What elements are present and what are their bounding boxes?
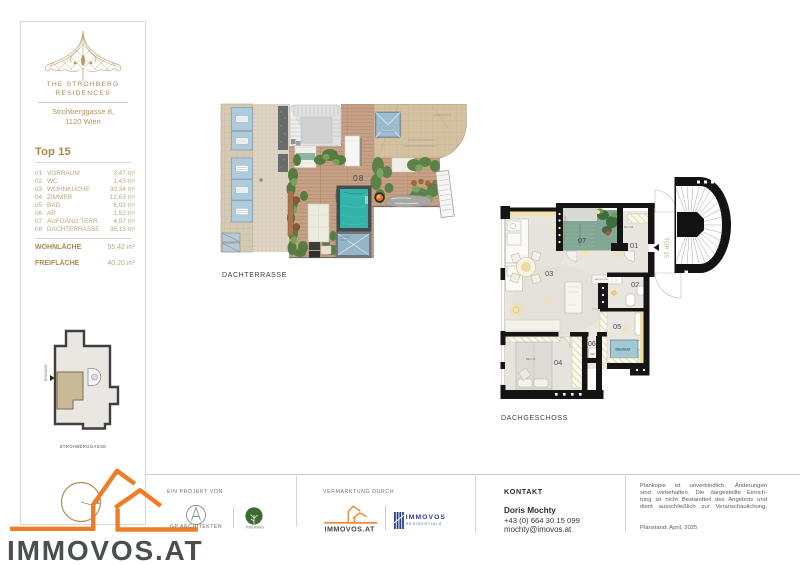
svg-text:06: 06 <box>588 341 596 348</box>
svg-text:WM: WM <box>590 352 596 356</box>
svg-text:IMMOVOS.AT: IMMOVOS.AT <box>325 525 375 534</box>
svg-text:PREMWERK: PREMWERK <box>246 526 264 530</box>
svg-text:Oberlicht: Oberlicht <box>616 348 632 352</box>
svg-text:Aufgang zur Terrasse: Aufgang zur Terrasse <box>563 215 567 240</box>
svg-text:RESIDENTIALS: RESIDENTIALS <box>406 522 442 526</box>
svg-text:BH 2,10: BH 2,10 <box>526 357 536 361</box>
svg-text:01: 01 <box>630 241 638 250</box>
svg-text:GARDEROBE: GARDEROBE <box>594 278 609 281</box>
svg-text:IMMOVOS: IMMOVOS <box>406 514 446 521</box>
svg-text:07: 07 <box>578 236 586 245</box>
svg-text:EINGANG: EINGANG <box>44 364 48 381</box>
svg-text:05: 05 <box>613 322 621 331</box>
svg-text:08: 08 <box>353 173 364 183</box>
svg-text:04: 04 <box>554 358 562 367</box>
svg-text:03: 03 <box>545 269 553 278</box>
svg-text:BH 1,34: BH 1,34 <box>624 225 634 229</box>
svg-text:TOP 15: TOP 15 <box>663 238 669 259</box>
